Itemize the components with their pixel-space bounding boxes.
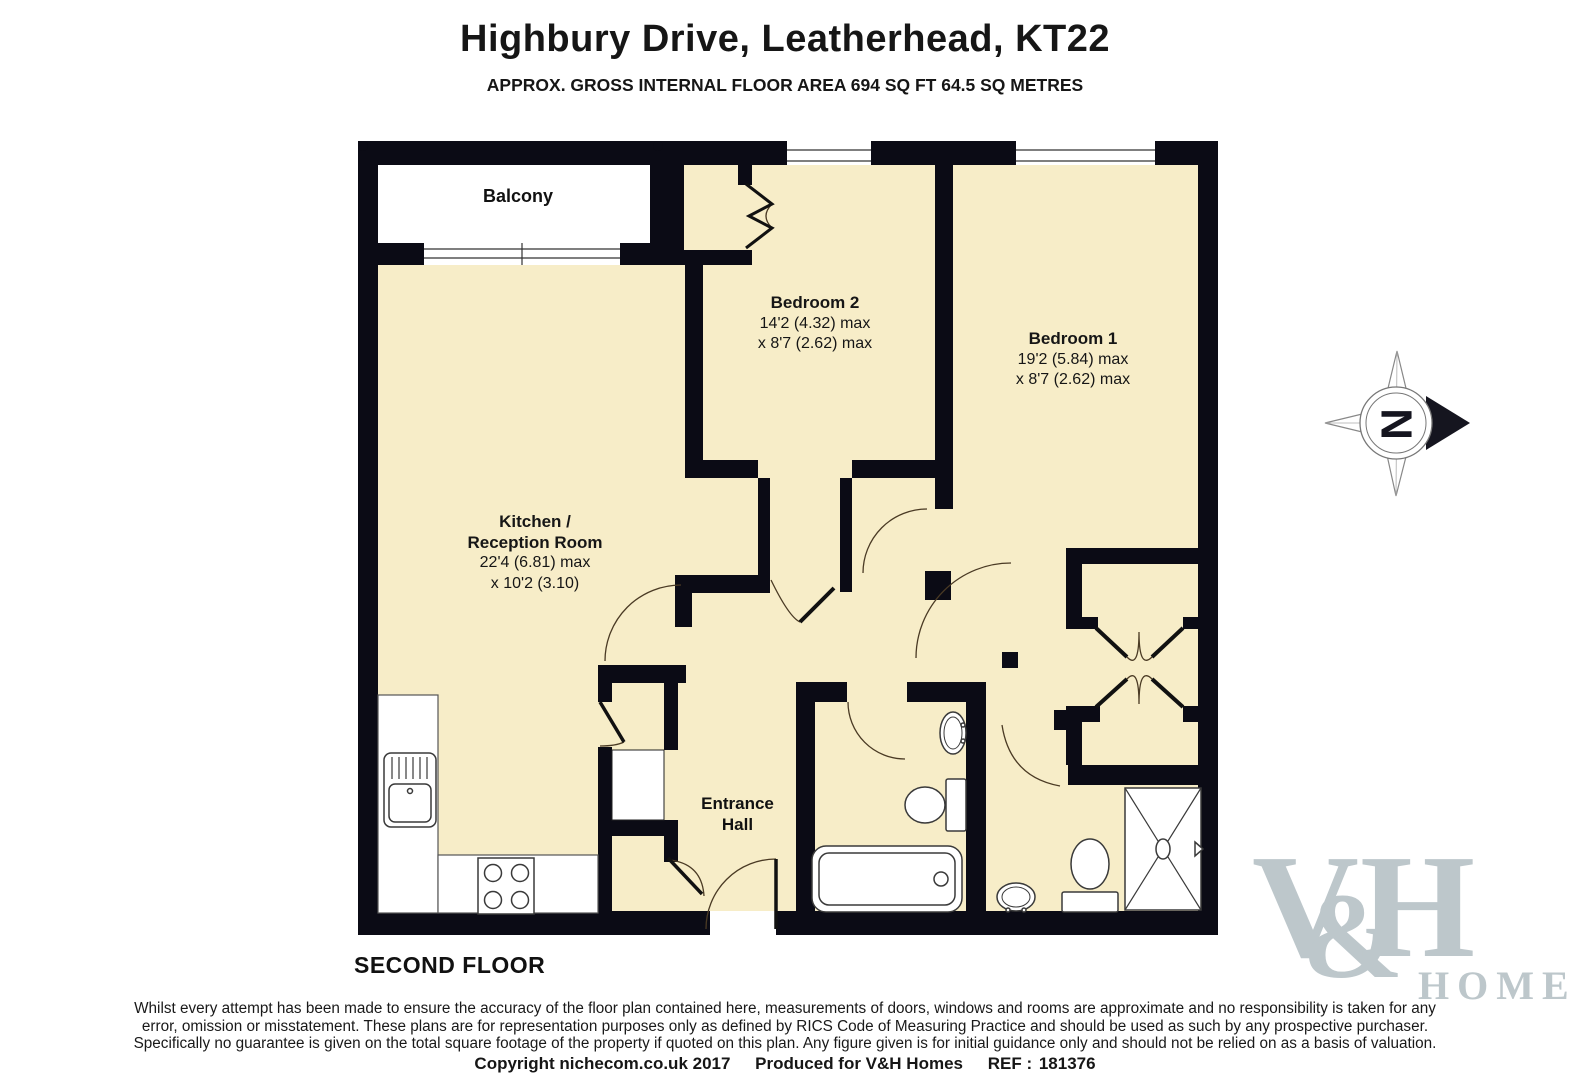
balcony-label: Balcony xyxy=(368,186,668,207)
room-dims: x 10'2 (3.10) xyxy=(420,574,650,595)
disclaimer-line: Whilst every attempt has been made to en… xyxy=(0,1000,1570,1018)
wall xyxy=(664,836,678,862)
wall xyxy=(598,683,612,702)
disclaimer-text: Whilst every attempt has been made to en… xyxy=(0,1000,1570,1053)
basin-inner xyxy=(1002,887,1030,907)
footer-credits: Copyright nichecom.co.uk 2017 Produced f… xyxy=(0,1054,1570,1074)
burner xyxy=(485,892,502,909)
bedroom2-label: Bedroom 2 14'2 (4.32) max x 8'7 (2.62) m… xyxy=(700,293,930,355)
basin-inner xyxy=(944,717,962,749)
kitchen-sink-icon xyxy=(384,753,436,827)
copyright-text: Copyright nichecom.co.uk 2017 xyxy=(474,1054,730,1073)
wall xyxy=(1054,710,1068,730)
floor-name-label: SECOND FLOOR xyxy=(354,952,545,979)
room-name: Reception Room xyxy=(420,533,650,554)
logo-letter-h: H xyxy=(1360,833,1475,981)
tap xyxy=(961,739,965,743)
wall xyxy=(1066,548,1082,629)
wall xyxy=(1183,617,1199,629)
room-name: Entrance xyxy=(645,793,830,814)
room-dims: x 8'7 (2.62) max xyxy=(958,370,1188,391)
corner-dot xyxy=(358,141,368,151)
wall xyxy=(738,163,752,185)
room-name: Bedroom 2 xyxy=(700,293,930,314)
produced-for-text: Produced for V&H Homes xyxy=(755,1054,963,1073)
floor-plan-page: N V & H HOMES Highbury Drive, Leatherhea… xyxy=(0,0,1570,1080)
toilet-icon xyxy=(905,787,945,823)
burner xyxy=(512,892,529,909)
entrance-hall-label: Entrance Hall xyxy=(645,793,830,835)
wall xyxy=(1183,706,1199,722)
hob-icon xyxy=(478,858,534,914)
ref-value: 181376 xyxy=(1039,1054,1096,1073)
room-dims: 22'4 (6.81) max xyxy=(420,553,650,574)
toilet-cistern xyxy=(946,779,966,831)
toilet-cistern xyxy=(1062,892,1118,912)
wall xyxy=(684,250,752,265)
toilet-icon xyxy=(1071,839,1109,889)
shower-drain xyxy=(1156,839,1170,859)
room-dims: 14'2 (4.32) max xyxy=(700,314,930,335)
tap xyxy=(1022,908,1026,912)
bath-drain xyxy=(934,872,948,886)
kitchen-label: Kitchen / Reception Room 22'4 (6.81) max… xyxy=(420,512,650,594)
corner-dot xyxy=(653,141,663,151)
tap xyxy=(961,723,965,727)
wall xyxy=(1068,765,1200,785)
wall xyxy=(852,460,935,478)
wall xyxy=(1066,722,1082,765)
room-dims: 19'2 (5.84) max xyxy=(958,350,1188,371)
sink-drain xyxy=(408,789,413,794)
compass-north-letter: N xyxy=(1372,408,1421,440)
wall xyxy=(925,571,951,600)
disclaimer-line: error, omission or misstatement. These p… xyxy=(0,1018,1570,1036)
wall xyxy=(598,665,686,683)
wall xyxy=(935,163,953,509)
disclaimer-line: Specifically no guarantee is given on th… xyxy=(0,1035,1570,1053)
compass-icon: N xyxy=(1325,351,1470,496)
wall xyxy=(358,243,426,265)
wall xyxy=(1066,548,1200,564)
wall xyxy=(685,460,758,478)
room-name: Bedroom 1 xyxy=(958,329,1188,350)
front-door-opening xyxy=(710,911,776,935)
room-dims: x 8'7 (2.62) max xyxy=(700,334,930,355)
floor-area-subtitle: APPROX. GROSS INTERNAL FLOOR AREA 694 SQ… xyxy=(0,75,1570,96)
wall xyxy=(758,478,770,580)
wall xyxy=(664,683,678,750)
wall xyxy=(840,478,852,592)
wall xyxy=(620,243,668,265)
ref-label: REF : xyxy=(988,1054,1032,1073)
wall xyxy=(675,575,692,627)
room-name: Hall xyxy=(645,814,830,835)
tap xyxy=(1006,908,1010,912)
wall xyxy=(1066,706,1100,722)
burner xyxy=(512,865,529,882)
wall xyxy=(966,682,986,913)
wall xyxy=(1002,652,1018,668)
wall xyxy=(668,163,684,265)
burner xyxy=(485,865,502,882)
page-title: Highbury Drive, Leatherhead, KT22 xyxy=(0,18,1570,61)
wall xyxy=(1082,617,1098,629)
room-name: Kitchen / xyxy=(420,512,650,533)
wall xyxy=(796,682,847,702)
bedroom1-label: Bedroom 1 19'2 (5.84) max x 8'7 (2.62) m… xyxy=(958,329,1188,391)
